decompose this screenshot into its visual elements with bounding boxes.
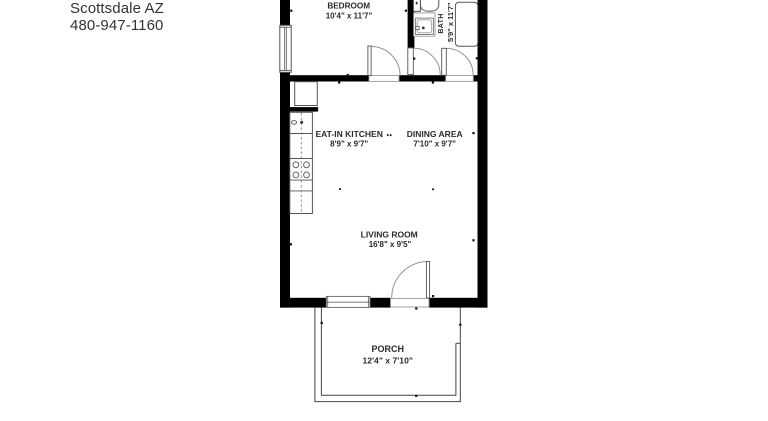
- svg-text:PORCH: PORCH: [371, 344, 404, 354]
- svg-text:10'4" x 11'7": 10'4" x 11'7": [326, 11, 373, 20]
- svg-text:12'4" x 7'10": 12'4" x 7'10": [362, 356, 412, 366]
- svg-text:5'9" x 11'7": 5'9" x 11'7": [446, 2, 455, 42]
- svg-text:16'8" x 9'5": 16'8" x 9'5": [369, 240, 412, 249]
- svg-text:7'10" x 9'7": 7'10" x 9'7": [413, 140, 456, 149]
- svg-text:BEDROOM: BEDROOM: [327, 1, 370, 10]
- svg-text:EAT-IN KITCHEN: EAT-IN KITCHEN: [316, 129, 383, 139]
- svg-text:8'9" x 9'7": 8'9" x 9'7": [330, 140, 368, 149]
- svg-text:BATH: BATH: [438, 13, 445, 33]
- svg-text:LIVING ROOM: LIVING ROOM: [361, 229, 418, 239]
- svg-text:DINING AREA: DINING AREA: [407, 129, 463, 139]
